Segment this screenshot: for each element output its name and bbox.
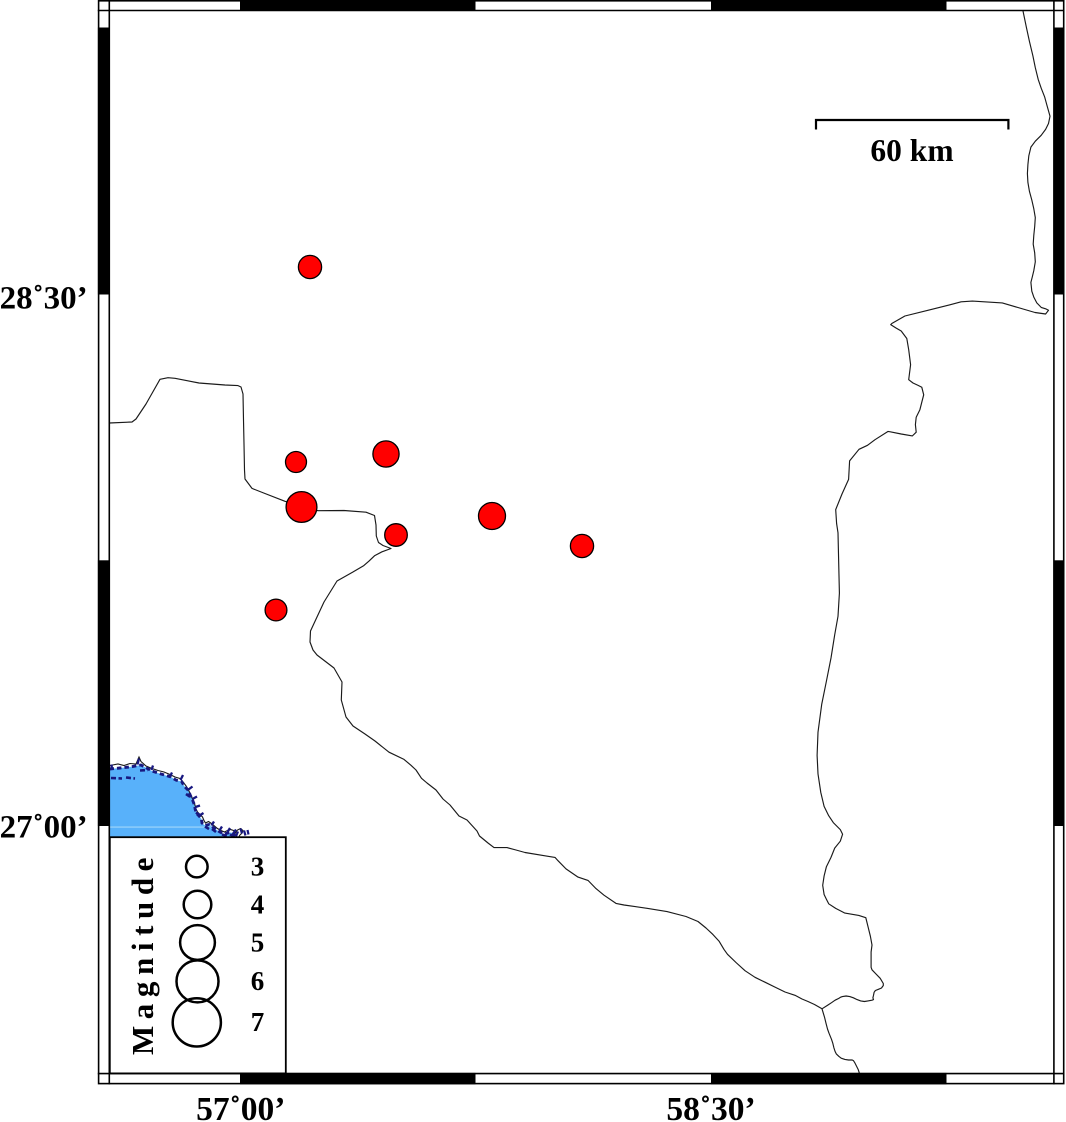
svg-text:57˚00’: 57˚00’: [196, 1091, 285, 1122]
svg-text:7: 7: [251, 1007, 265, 1037]
svg-text:6: 6: [251, 966, 265, 996]
svg-text:58˚30’: 58˚30’: [666, 1091, 755, 1122]
svg-text:27˚00’: 27˚00’: [0, 810, 88, 846]
svg-text:28˚30’: 28˚30’: [0, 281, 88, 317]
svg-text:4: 4: [251, 889, 265, 919]
svg-text:3: 3: [251, 851, 265, 881]
svg-text:5: 5: [251, 927, 265, 957]
svg-text:60 km: 60 km: [870, 133, 953, 168]
svg-text:Magnitude: Magnitude: [125, 851, 160, 1055]
